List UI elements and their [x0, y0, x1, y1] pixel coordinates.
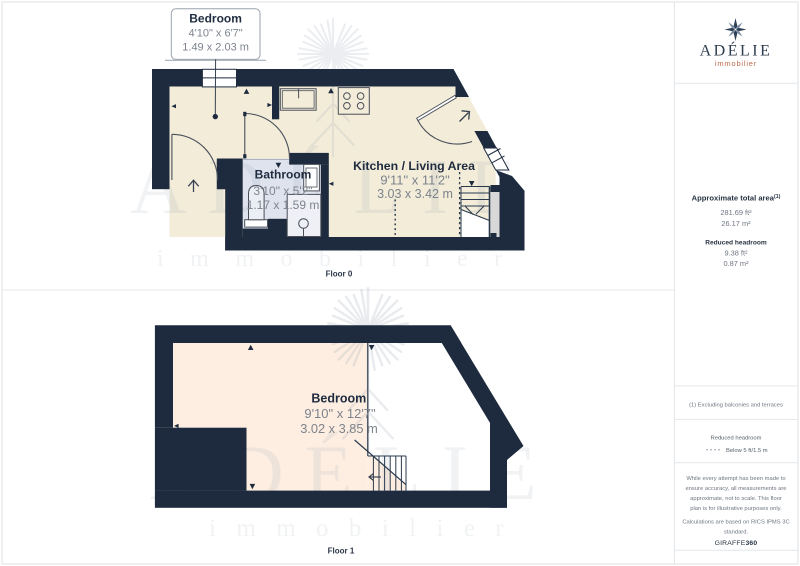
svg-text:Reduced headroom: Reduced headroom — [711, 436, 762, 442]
svg-text:3.02 x 3.85 m: 3.02 x 3.85 m — [300, 421, 378, 436]
svg-text:GIRAFFE360: GIRAFFE360 — [715, 540, 758, 547]
svg-text:9'11" x 11'2": 9'11" x 11'2" — [380, 173, 450, 188]
svg-text:1.17 x 1.59 m: 1.17 x 1.59 m — [247, 198, 320, 212]
svg-text:26.17 m²: 26.17 m² — [721, 219, 751, 228]
svg-text:While every attempt has been m: While every attempt has been made to — [686, 476, 785, 482]
svg-text:Reduced headroom: Reduced headroom — [705, 240, 767, 247]
svg-text:(1) Excluding balconies and te: (1) Excluding balconies and terraces — [689, 403, 783, 409]
svg-text:ensure accuracy, all measureme: ensure accuracy, all measurements are — [685, 486, 786, 492]
svg-text:Bedroom: Bedroom — [311, 392, 366, 406]
svg-text:approximate, not to scale. Thi: approximate, not to scale. This floor — [690, 496, 782, 502]
svg-text:Bathroom: Bathroom — [255, 167, 312, 181]
svg-text:9.38 ft²: 9.38 ft² — [724, 249, 748, 258]
svg-text:3.03 x 3.42 m: 3.03 x 3.42 m — [377, 187, 453, 201]
svg-text:plan is for illustrative purpo: plan is for illustrative purposes only. — [690, 506, 782, 512]
svg-text:standard.: standard. — [724, 530, 749, 536]
svg-text:Below 5 ft/1.5 m: Below 5 ft/1.5 m — [726, 448, 768, 454]
svg-text:0.87 m²: 0.87 m² — [723, 259, 749, 268]
svg-text:1.49 x 2.03 m: 1.49 x 2.03 m — [182, 41, 249, 53]
svg-text:immobilier: immobilier — [209, 515, 524, 542]
svg-text:Bedroom: Bedroom — [189, 11, 242, 25]
svg-text:Calculations are based on RICS: Calculations are based on RICS IPMS 3C — [682, 520, 789, 526]
svg-text:9'10" x 12'7": 9'10" x 12'7" — [304, 406, 376, 421]
svg-text:3'10" x 5'2": 3'10" x 5'2" — [253, 184, 312, 198]
svg-text:immobilier: immobilier — [715, 59, 757, 68]
svg-text:Floor 1: Floor 1 — [328, 546, 355, 555]
svg-text:281.69 ft²: 281.69 ft² — [720, 208, 752, 217]
svg-text:Approximate total area(1): Approximate total area(1) — [692, 194, 781, 203]
svg-text:Kitchen / Living Area: Kitchen / Living Area — [353, 159, 475, 173]
svg-text:ADÉLIE: ADÉLIE — [700, 41, 773, 60]
svg-text:4'10" x 6'7": 4'10" x 6'7" — [188, 27, 242, 39]
svg-text:Floor 0: Floor 0 — [326, 269, 353, 278]
